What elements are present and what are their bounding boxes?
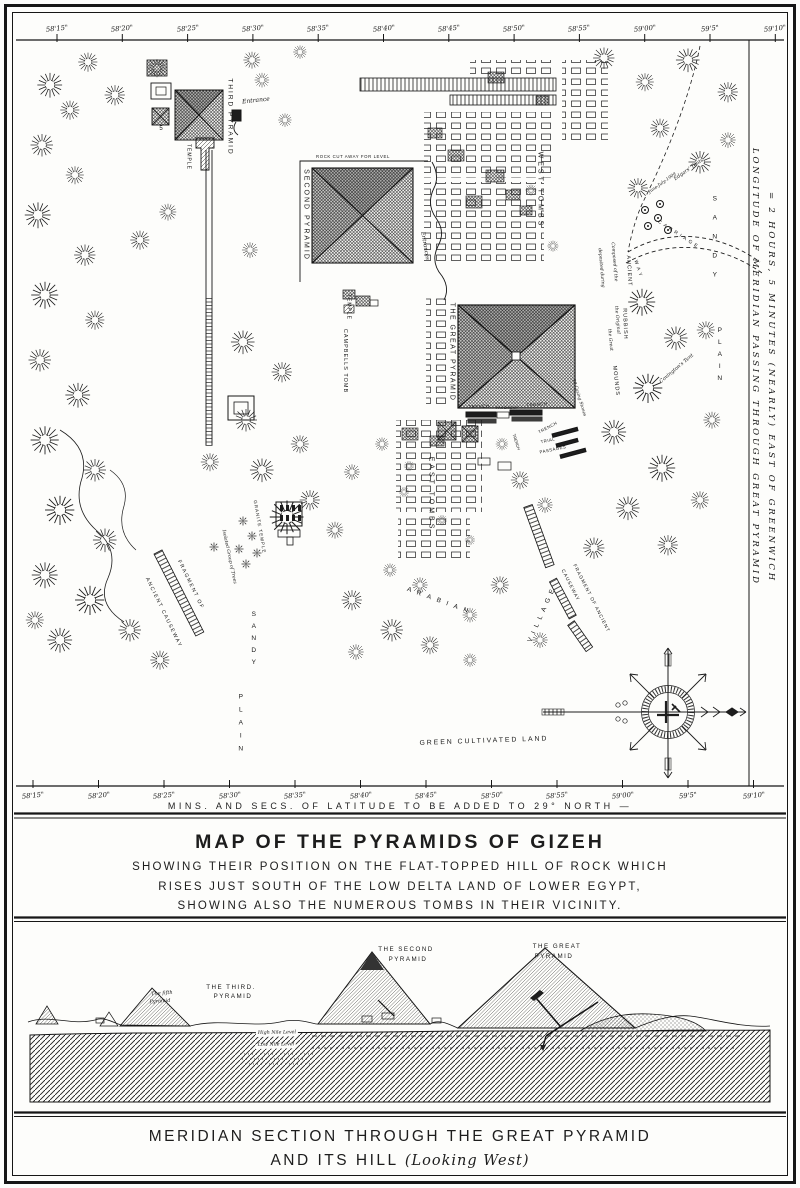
hachured-mounds bbox=[25, 45, 738, 669]
map-subtitle-1: SHOWING THEIR POSITION ON THE FLAT-TOPPE… bbox=[0, 861, 800, 873]
map-sheet: THIRD PYRAMIDEntranceTEMPLE5SECOND PYRAM… bbox=[0, 0, 800, 1188]
section-drawing bbox=[28, 948, 770, 1102]
section-caption-line1: MERIDIAN SECTION THROUGH THE GREAT PYRAM… bbox=[0, 1128, 800, 1146]
section-caption-line2-text: AND ITS HILL bbox=[270, 1152, 398, 1169]
compass-rose bbox=[542, 648, 746, 778]
campbells-tomb-structure bbox=[228, 396, 254, 420]
map-subtitle-3: SHOWING ALSO THE NUMEROUS TOMBS IN THEIR… bbox=[0, 900, 800, 912]
third-pyramid-plan bbox=[175, 90, 223, 140]
edgars-tents-structures bbox=[642, 201, 672, 234]
great-pyramid-plan bbox=[458, 305, 575, 408]
latitude-scale-caption: MINS. AND SECS. OF LATITUDE TO BE ADDED … bbox=[0, 801, 800, 811]
section-caption-line2: AND ITS HILL (Looking West) bbox=[0, 1152, 800, 1170]
longitude-note-line1: LONGITUDE OF MERIDIAN PASSING THROUGH GR… bbox=[750, 148, 760, 586]
map-and-section-drawing bbox=[0, 0, 800, 1188]
map-title: MAP OF THE PYRAMIDS OF GIZEH bbox=[0, 831, 800, 854]
map-subtitle-2: RISES JUST SOUTH OF THE LOW DELTA LAND O… bbox=[0, 881, 800, 893]
longitude-note-line2: = 2 HOURS, 5 MINUTES (NEARLY) EAST OF GR… bbox=[766, 192, 776, 583]
section-caption-looking-west: (Looking West) bbox=[405, 1153, 530, 1169]
second-pyramid-temple bbox=[343, 290, 378, 313]
rock-ridges bbox=[60, 430, 136, 622]
tree-group bbox=[210, 517, 262, 569]
